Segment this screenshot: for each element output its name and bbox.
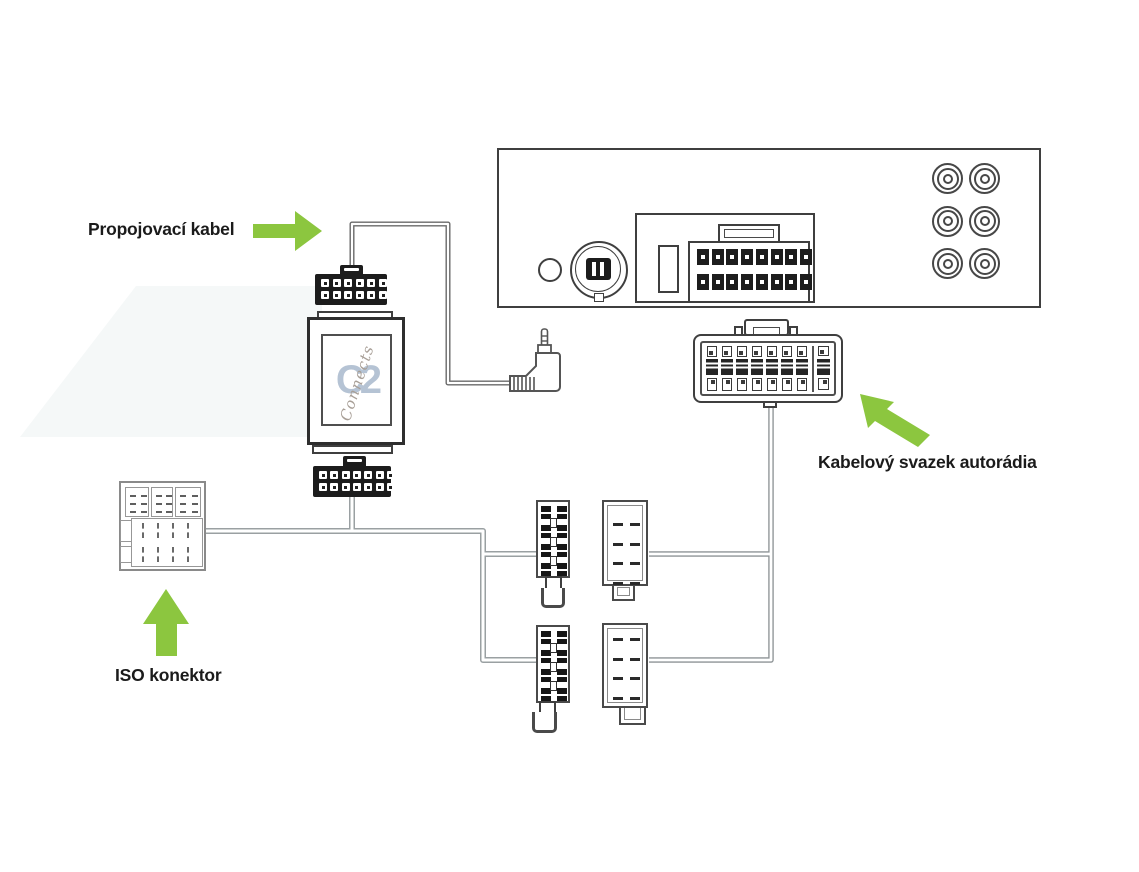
adapter-body: C2 Connects bbox=[307, 317, 405, 445]
adapter-pin bbox=[367, 291, 375, 299]
radio-socket-pin bbox=[756, 274, 768, 290]
adapter-pin bbox=[344, 279, 352, 287]
radio-socket-pin bbox=[756, 249, 768, 265]
radio-socket-pin bbox=[771, 249, 783, 265]
radio-socket-pin bbox=[697, 274, 709, 290]
adapter-pin bbox=[342, 483, 350, 491]
label-iso-connector: ISO konektor bbox=[115, 665, 222, 686]
housing-pin-dash bbox=[613, 582, 623, 585]
harness-pin bbox=[752, 378, 762, 391]
adapter-pin bbox=[364, 483, 372, 491]
housing-pin-dash bbox=[613, 677, 623, 680]
iso-pin bbox=[172, 523, 176, 538]
rca-jack bbox=[932, 163, 963, 194]
iso-pin-dash bbox=[141, 511, 147, 513]
housing-pin-dash bbox=[630, 523, 640, 526]
radio-socket-pinblock bbox=[688, 241, 810, 303]
harness-pin bbox=[782, 378, 792, 391]
adapter-pin bbox=[330, 483, 338, 491]
mini-1-clip bbox=[541, 588, 565, 608]
harness-inner bbox=[700, 341, 836, 396]
adapter-bottom-flange bbox=[312, 445, 393, 454]
harness-pin-right-bottom bbox=[818, 378, 829, 390]
radio-socket-pin bbox=[785, 249, 797, 265]
iso-pin-dash bbox=[180, 503, 186, 505]
iso-pin-dash bbox=[141, 503, 147, 505]
iso-wire-core bbox=[204, 531, 538, 660]
iso-pin-dash bbox=[141, 495, 147, 497]
jack-collar bbox=[538, 345, 551, 353]
iso-pin bbox=[187, 547, 191, 562]
wiring-diagram: C2 Connects bbox=[0, 0, 1139, 872]
adapter-bottom-connector bbox=[313, 466, 391, 497]
iso-wire-outline bbox=[204, 531, 538, 660]
adapter-pin bbox=[379, 291, 387, 299]
housing-pin-dash bbox=[613, 658, 623, 661]
iso-pin-dash bbox=[166, 495, 172, 497]
adapter-pin bbox=[342, 471, 350, 479]
radio-socket-pin bbox=[712, 249, 724, 265]
arrow-up-left-icon bbox=[860, 394, 930, 447]
rca-jack bbox=[969, 206, 1000, 237]
mini-2-keys bbox=[538, 627, 568, 701]
housing-pin-dash bbox=[630, 697, 640, 700]
iso-pin-dash bbox=[166, 503, 172, 505]
rca-jack bbox=[932, 248, 963, 279]
iso-pin-dash bbox=[130, 511, 136, 513]
adapter-pin bbox=[376, 483, 384, 491]
iso-pin bbox=[187, 523, 191, 538]
iso-pin-dash bbox=[192, 495, 198, 497]
iso-key-notch-2 bbox=[120, 546, 132, 563]
iso-pin bbox=[142, 547, 146, 562]
housing-2-body bbox=[602, 623, 648, 708]
iso-cell-1 bbox=[125, 487, 149, 517]
adapter-pin bbox=[356, 279, 364, 287]
harness-pin bbox=[707, 378, 717, 391]
adapter-pin bbox=[379, 279, 387, 287]
adapter-pin bbox=[321, 291, 329, 299]
iso-pin bbox=[157, 547, 161, 562]
iso-pin-dash bbox=[156, 503, 162, 505]
adapter-pin bbox=[364, 471, 372, 479]
aux-jack-plug bbox=[510, 329, 560, 391]
radio-socket-pin bbox=[712, 274, 724, 290]
housing-pin-dash bbox=[630, 562, 640, 565]
adapter-pin bbox=[319, 483, 327, 491]
arrow-right-icon bbox=[253, 211, 322, 251]
adapter-pin bbox=[321, 279, 329, 287]
housing-pin-dash bbox=[613, 562, 623, 565]
housing-pin-dash bbox=[630, 677, 640, 680]
rca-jack-grid bbox=[932, 163, 1000, 279]
iso-key-notch-1 bbox=[120, 520, 132, 542]
radio-socket-pin bbox=[741, 274, 753, 290]
background-watermark bbox=[20, 286, 322, 437]
radio-socket-pin bbox=[800, 274, 812, 290]
rca-jack bbox=[932, 206, 963, 237]
adapter-pin bbox=[333, 279, 341, 287]
iso-pin bbox=[172, 547, 176, 562]
adapter-pin bbox=[344, 291, 352, 299]
mini-connector-1-body bbox=[536, 500, 570, 578]
radio-socket-pin bbox=[726, 274, 738, 290]
adapter-pin bbox=[376, 471, 384, 479]
iso-pin-dash bbox=[192, 503, 198, 505]
antenna-contact-block bbox=[586, 258, 611, 280]
iso-cell-2 bbox=[151, 487, 173, 517]
radio-connector-subpanel bbox=[635, 213, 815, 303]
radio-socket-pin bbox=[800, 249, 812, 265]
radio-rear-panel bbox=[497, 148, 1041, 308]
housing-1-body bbox=[602, 500, 648, 586]
iso-pin-dash bbox=[130, 495, 136, 497]
housing-pin-dash bbox=[630, 543, 640, 546]
housing-pin-dash bbox=[630, 582, 640, 585]
harness-contact-right bbox=[817, 359, 830, 375]
iso-pin-dash bbox=[156, 511, 162, 513]
adapter-pin bbox=[367, 279, 375, 287]
harness-wire-exit-tab bbox=[763, 401, 777, 408]
iso-pin-dash bbox=[180, 511, 186, 513]
radio-socket-pin bbox=[785, 274, 797, 290]
mini-key bbox=[550, 662, 557, 672]
harness-pin bbox=[737, 378, 747, 391]
diagram-linework bbox=[0, 0, 1139, 872]
mini-1-keys bbox=[538, 502, 568, 576]
label-connection-cable: Propojovací kabel bbox=[88, 219, 234, 240]
adapter-pin bbox=[353, 471, 361, 479]
subpanel-slot bbox=[658, 245, 679, 293]
label-radio-harness: Kabelový svazek autorádia bbox=[818, 452, 1037, 473]
housing-pin-dash bbox=[630, 658, 640, 661]
housing-pin-dash bbox=[613, 523, 623, 526]
housing-pin-dash bbox=[613, 638, 623, 641]
rca-jack bbox=[969, 163, 1000, 194]
antenna-slot-2 bbox=[600, 262, 604, 276]
iso-cell-3 bbox=[175, 487, 201, 517]
antenna-slot-1 bbox=[592, 262, 596, 276]
housing-pin-dash bbox=[613, 543, 623, 546]
iso-pin-dash bbox=[192, 511, 198, 513]
harness-pins-bottom-row bbox=[702, 343, 834, 394]
housing-1-tab bbox=[612, 584, 635, 601]
arrow-up-icon bbox=[143, 589, 189, 656]
harness-pin bbox=[722, 378, 732, 391]
iso-pin-dash bbox=[166, 511, 172, 513]
harness-pin bbox=[767, 378, 777, 391]
adapter-pin bbox=[330, 471, 338, 479]
jack-tip bbox=[542, 329, 548, 346]
mini-2-clip bbox=[532, 712, 557, 733]
mini-key bbox=[550, 643, 557, 653]
adapter-pin bbox=[319, 471, 327, 479]
housing-pin-dash bbox=[613, 697, 623, 700]
adapter-pin bbox=[333, 291, 341, 299]
iso-pin-dash bbox=[180, 495, 186, 497]
radio-socket-pin bbox=[726, 249, 738, 265]
iso-pin-area bbox=[131, 518, 203, 567]
radio-harness-wire-outline bbox=[649, 400, 771, 660]
harness-pin-right-top bbox=[818, 346, 829, 356]
aux-socket bbox=[538, 258, 562, 282]
radio-harness-wire-core bbox=[649, 400, 771, 660]
mini-key bbox=[550, 681, 557, 691]
mini-key bbox=[550, 556, 557, 566]
adapter-label: C2 Connects bbox=[321, 334, 392, 426]
mini-key bbox=[550, 518, 557, 528]
adapter-pin bbox=[356, 291, 364, 299]
iso-pin-dash bbox=[130, 503, 136, 505]
radio-socket-pin bbox=[697, 249, 709, 265]
antenna-key-tab bbox=[594, 293, 604, 302]
adapter-pin bbox=[353, 483, 361, 491]
radio-socket-pin bbox=[741, 249, 753, 265]
radio-socket-key-slot bbox=[724, 229, 774, 238]
mini-connector-2-body bbox=[536, 625, 570, 703]
iso-pin bbox=[157, 523, 161, 538]
iso-pin-dash bbox=[156, 495, 162, 497]
adapter-pin bbox=[387, 471, 395, 479]
antenna-socket bbox=[570, 241, 628, 299]
radio-socket-pin bbox=[771, 274, 783, 290]
harness-body bbox=[693, 334, 843, 403]
adapter-pin bbox=[387, 483, 395, 491]
housing-pin-dash bbox=[630, 638, 640, 641]
harness-pin bbox=[797, 378, 807, 391]
iso-pin bbox=[142, 523, 146, 538]
adapter-top-connector bbox=[315, 274, 387, 305]
mini-key bbox=[550, 537, 557, 547]
rca-jack bbox=[969, 248, 1000, 279]
